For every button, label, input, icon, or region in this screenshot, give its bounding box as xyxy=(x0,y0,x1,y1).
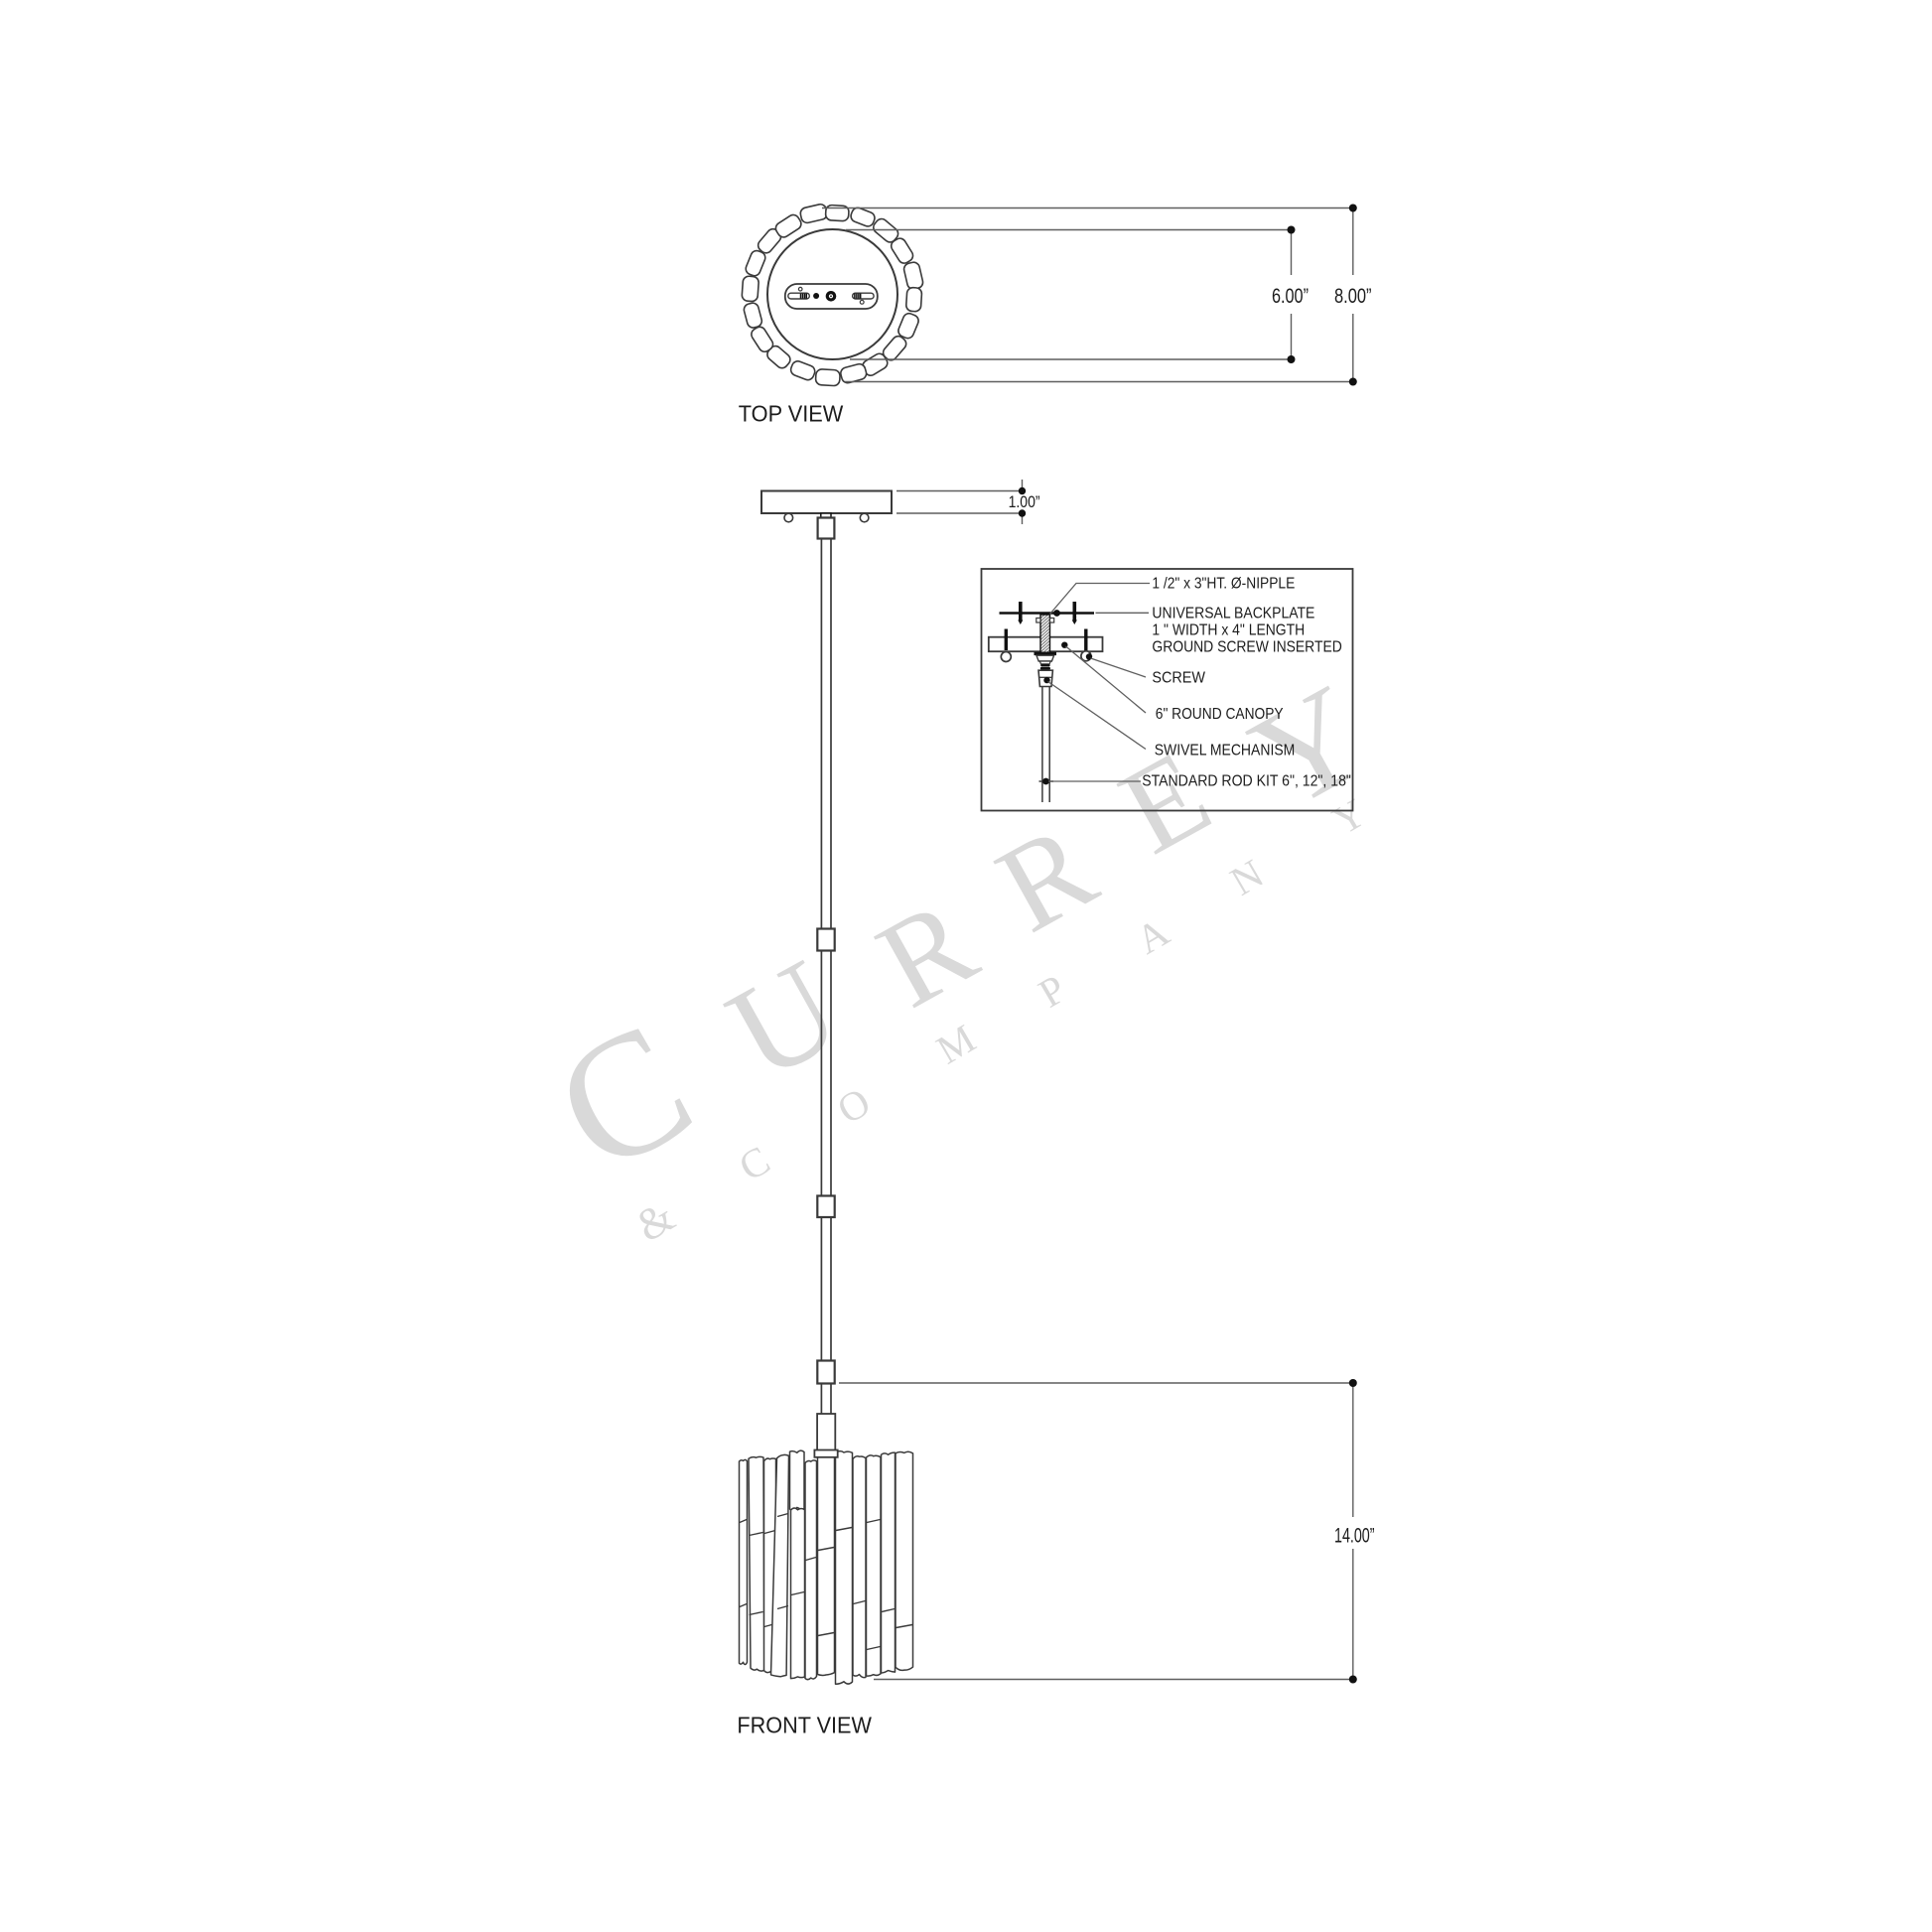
svg-text:8.00”: 8.00” xyxy=(1334,284,1372,308)
svg-text:GROUND SCREW INSERTED: GROUND SCREW INSERTED xyxy=(1152,639,1341,656)
svg-text:FRONT VIEW: FRONT VIEW xyxy=(737,1712,872,1737)
svg-text:14.00”: 14.00” xyxy=(1334,1524,1375,1548)
svg-text:1.00”: 1.00” xyxy=(1009,493,1040,511)
svg-text:SWIVEL MECHANISM: SWIVEL MECHANISM xyxy=(1155,742,1296,759)
svg-text:1 /2" x 3"HT. Ø-NIPPLE: 1 /2" x 3"HT. Ø-NIPPLE xyxy=(1152,576,1295,593)
svg-text:STANDARD ROD KIT 6", 12", 18": STANDARD ROD KIT 6", 12", 18" xyxy=(1142,773,1351,790)
svg-text:TOP VIEW: TOP VIEW xyxy=(739,401,844,427)
svg-text:UNIVERSAL BACKPLATE: UNIVERSAL BACKPLATE xyxy=(1152,605,1314,621)
svg-text:6.00”: 6.00” xyxy=(1272,284,1309,308)
svg-text:6" ROUND CANOPY: 6" ROUND CANOPY xyxy=(1156,706,1284,723)
svg-text:SCREW: SCREW xyxy=(1152,669,1205,686)
svg-text:1 " WIDTH x 4" LENGTH: 1 " WIDTH x 4" LENGTH xyxy=(1152,622,1305,639)
